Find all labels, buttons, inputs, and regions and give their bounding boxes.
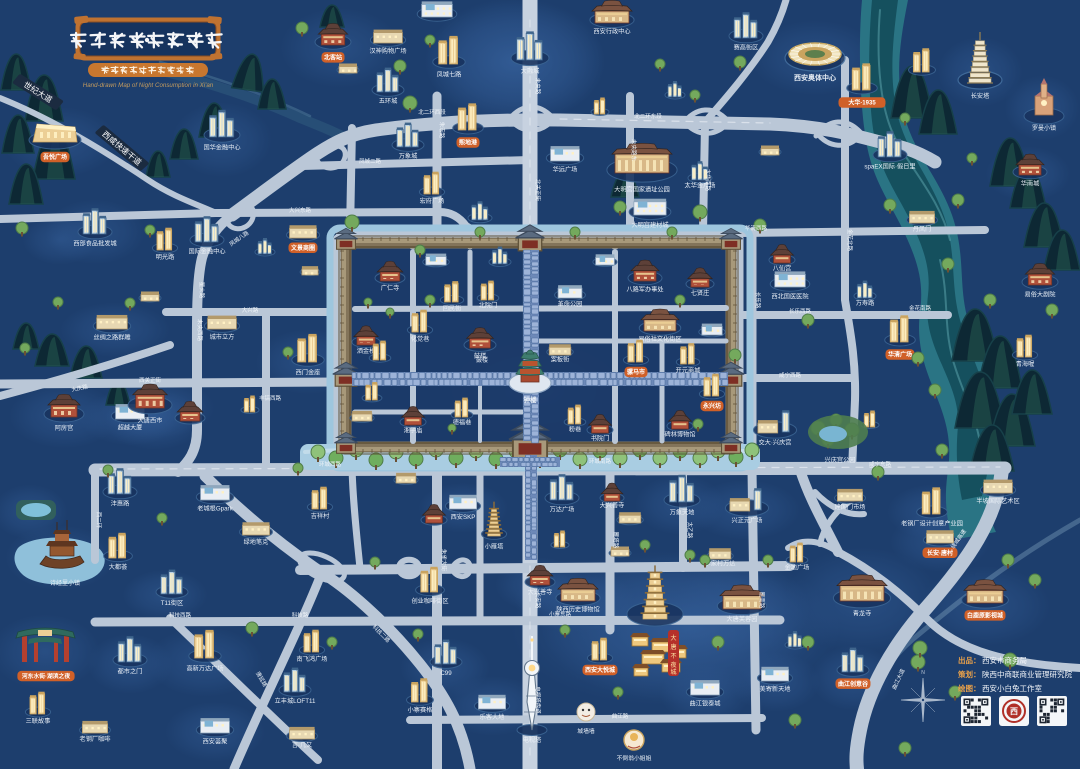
svg-text:都市之门: 都市之门 (118, 668, 143, 676)
svg-text:乐客大地: 乐客大地 (480, 713, 505, 721)
svg-text:老钢厂咖啡: 老钢厂咖啡 (80, 735, 111, 743)
svg-text:西: 西 (1010, 707, 1018, 716)
svg-text:科技路: 科技路 (292, 611, 309, 619)
svg-text:西部食品批发城: 西部食品批发城 (73, 240, 116, 248)
svg-text:spaEX国际·假日里: spaEX国际·假日里 (864, 163, 915, 171)
svg-text:文景商圈: 文景商圈 (290, 244, 315, 252)
svg-text:汉神购物广场: 汉神购物广场 (369, 47, 406, 55)
svg-text:凤城七路: 凤城七路 (437, 70, 463, 78)
svg-text:易俗大剧院: 易俗大剧院 (1025, 290, 1056, 298)
svg-text:北客站: 北客站 (324, 54, 342, 62)
svg-text:大兴善寺: 大兴善寺 (600, 502, 625, 510)
svg-text:科技西路: 科技西路 (169, 611, 192, 619)
svg-text:曲江银泰城: 曲江银泰城 (690, 700, 721, 708)
svg-text:城: 城 (670, 669, 676, 676)
svg-text:大融城: 大融城 (521, 67, 540, 75)
svg-text:七贤庄: 七贤庄 (691, 289, 710, 297)
svg-text:北关正街: 北关正街 (534, 179, 542, 202)
svg-text:建国门市场: 建国门市场 (835, 503, 866, 511)
svg-text:吉祥村: 吉祥村 (311, 512, 330, 520)
svg-text:赛高街区: 赛高街区 (734, 44, 759, 52)
svg-text:熙地港: 熙地港 (459, 139, 478, 147)
svg-text:未央西路: 未央西路 (196, 319, 204, 342)
svg-text:曲江路: 曲江路 (612, 712, 629, 720)
svg-text:曲江创意谷: 曲江创意谷 (838, 680, 869, 688)
svg-text:电视塔盘道: 电视塔盘道 (534, 686, 542, 714)
svg-text:大兴东路: 大兴东路 (289, 206, 312, 214)
svg-text:创业咖啡街区: 创业咖啡街区 (411, 597, 448, 605)
svg-text:回民街: 回民街 (443, 304, 462, 312)
svg-text:河东水街·湖滨之夜: 河东水街·湖滨之夜 (22, 672, 71, 680)
svg-text:万象天地: 万象天地 (670, 508, 695, 516)
svg-text:湘子庙: 湘子庙 (404, 426, 423, 434)
svg-text:老钢厂设计创意产业园: 老钢厂设计创意产业园 (901, 520, 963, 528)
svg-text:永兴坊: 永兴坊 (702, 402, 721, 410)
svg-text:未央路: 未央路 (534, 78, 542, 95)
svg-text:老城根Gpark: 老城根Gpark (197, 505, 233, 513)
svg-text:大都荟: 大都荟 (109, 563, 128, 571)
svg-text:小寨东路: 小寨东路 (549, 610, 572, 618)
svg-text:广仁寺: 广仁寺 (381, 284, 400, 292)
svg-text:华清西路: 华清西路 (745, 224, 768, 232)
svg-text:西二环: 西二环 (95, 512, 102, 529)
svg-text:C99: C99 (440, 670, 452, 677)
svg-text:罗曼小镇: 罗曼小镇 (1032, 124, 1056, 132)
svg-text:电视塔: 电视塔 (523, 736, 542, 744)
svg-text:大兴路: 大兴路 (242, 306, 259, 314)
svg-text:西关正街: 西关正街 (139, 376, 162, 384)
svg-text:唐: 唐 (670, 643, 676, 651)
svg-text:八仙宫: 八仙宫 (773, 264, 792, 272)
svg-text:吾悦广场: 吾悦广场 (43, 153, 67, 161)
svg-text:国华金融中心: 国华金融中心 (203, 143, 240, 151)
svg-text:钟楼: 钟楼 (524, 395, 538, 404)
svg-text:Hand-drawn Map of Night Consum: Hand-drawn Map of Night Consumption in X… (83, 82, 214, 89)
svg-text:国际金融中心: 国际金融中心 (188, 248, 225, 256)
svg-text:西安大悦城: 西安大悦城 (585, 666, 615, 674)
svg-text:兴庆宫公园: 兴庆宫公园 (825, 456, 856, 464)
svg-text:交大·兴庆宫: 交大·兴庆宫 (759, 438, 792, 446)
svg-text:华南城: 华南城 (1021, 180, 1040, 188)
svg-text:绿地笔克: 绿地笔克 (244, 538, 269, 546)
svg-text:T11街区: T11街区 (161, 599, 184, 607)
svg-text:不: 不 (670, 653, 676, 660)
svg-text:开元商城: 开元商城 (676, 366, 701, 374)
svg-text:北院门: 北院门 (479, 302, 498, 310)
svg-text:华远广场: 华远广场 (553, 166, 578, 174)
svg-text:丰镐西路: 丰镐西路 (259, 394, 282, 402)
svg-text:长乐路: 长乐路 (754, 292, 762, 309)
svg-text:西北国医医院: 西北国医医院 (771, 292, 808, 300)
svg-text:太华南路: 太华南路 (704, 169, 712, 192)
svg-text:立丰城LOFT11: 立丰城LOFT11 (275, 697, 316, 705)
svg-text:易俗社文化街区: 易俗社文化街区 (638, 335, 681, 343)
svg-text:大唐芙蓉园: 大唐芙蓉园 (727, 615, 758, 623)
svg-text:万象城: 万象城 (399, 152, 418, 160)
svg-text:金花北路: 金花北路 (846, 229, 854, 252)
svg-text:沣惠路: 沣惠路 (111, 500, 130, 508)
svg-text:五环城: 五环城 (379, 98, 398, 105)
svg-text:不倒翁小姐姐: 不倒翁小姐姐 (617, 754, 652, 762)
svg-text:兴正元广场: 兴正元广场 (732, 516, 763, 524)
svg-text:朱雀大街: 朱雀大街 (440, 549, 448, 572)
svg-text:三联故事: 三联故事 (26, 717, 51, 725)
svg-text:凤城二路: 凤城二路 (359, 157, 382, 165)
svg-text:大华·1935: 大华·1935 (848, 99, 876, 107)
svg-text:诗经里小镇: 诗经里小镇 (50, 579, 80, 587)
svg-text:化觉巷: 化觉巷 (411, 335, 430, 343)
svg-text:小雁塔: 小雁塔 (485, 542, 504, 550)
svg-text:碑林博物馆: 碑林博物馆 (665, 430, 696, 438)
svg-text:环城南路: 环城南路 (589, 457, 612, 465)
svg-text:西安市商务局: 西安市商务局 (982, 655, 1027, 665)
svg-text:美寄新天地: 美寄新天地 (760, 685, 791, 693)
svg-text:西安奥体中心: 西安奥体中心 (794, 73, 836, 82)
svg-text:大明宫国家遗址公园: 大明宫国家遗址公园 (614, 186, 670, 194)
svg-text:西安荟聚: 西安荟聚 (203, 738, 229, 746)
svg-text:N: N (921, 670, 925, 676)
svg-text:雁南路: 雁南路 (758, 592, 766, 609)
svg-text:咸宁西路: 咸宁西路 (779, 371, 802, 379)
svg-text:绘图：: 绘图： (958, 683, 981, 693)
svg-text:鼓楼: 鼓楼 (476, 356, 488, 364)
svg-text:城墙墙: 城墙墙 (577, 727, 595, 735)
svg-text:明光路: 明光路 (156, 253, 175, 261)
svg-text:革命公园: 革命公园 (558, 300, 583, 308)
svg-text:西安行政中心: 西安行政中心 (593, 28, 630, 36)
svg-text:陕西中商联商业管理研究院: 陕西中商联商业管理研究院 (982, 669, 1072, 679)
svg-text:宏府广场: 宏府广场 (420, 197, 445, 205)
svg-text:西门金座: 西门金座 (296, 368, 321, 376)
svg-text:北二环西段: 北二环西段 (418, 108, 446, 116)
svg-text:金地广场: 金地广场 (785, 564, 810, 572)
svg-text:青龙寺: 青龙寺 (853, 610, 872, 618)
svg-text:太乙路: 太乙路 (686, 522, 694, 539)
svg-text:大明宫建材城: 大明宫建材城 (631, 221, 668, 229)
svg-text:城市立方: 城市立方 (210, 333, 235, 341)
svg-text:粉巷: 粉巷 (569, 426, 582, 434)
svg-text:丹凤门: 丹凤门 (913, 225, 932, 233)
svg-text:咸宁东路: 咸宁东路 (869, 460, 892, 468)
svg-text:环城西路: 环城西路 (319, 460, 342, 468)
svg-text:朱宏路: 朱宏路 (438, 122, 446, 139)
svg-text:金花南路: 金花南路 (909, 304, 932, 312)
svg-text:长安塔: 长安塔 (971, 92, 990, 100)
svg-text:高新万达广场: 高新万达广场 (186, 664, 223, 672)
svg-text:万寿路: 万寿路 (856, 299, 875, 307)
svg-text:北二环东段: 北二环东段 (634, 112, 662, 120)
svg-text:长安路: 长安路 (534, 592, 542, 609)
svg-text:出品：: 出品： (958, 655, 981, 665)
svg-text:青海喔: 青海喔 (1016, 360, 1035, 368)
svg-text:小寨赛格: 小寨赛格 (408, 706, 434, 714)
svg-text:雁塔路: 雁塔路 (612, 532, 620, 549)
svg-text:华清广场: 华清广场 (888, 351, 912, 359)
svg-text:南飞鸿广场: 南飞鸿广场 (297, 655, 328, 663)
svg-text:半坡国际艺术区: 半坡国际艺术区 (976, 497, 1019, 505)
svg-text:大: 大 (670, 634, 676, 642)
svg-text:星火路: 星火路 (198, 282, 206, 299)
svg-text:书院门: 书院门 (591, 434, 610, 442)
svg-text:万达广场: 万达广场 (550, 506, 575, 514)
svg-text:大唐西市: 大唐西市 (138, 417, 163, 425)
svg-text:骡马市: 骡马市 (627, 368, 645, 376)
svg-text:洒金桥: 洒金桥 (357, 347, 376, 355)
svg-text:阿房宫: 阿房宫 (55, 424, 74, 432)
svg-text:策划：: 策划： (958, 669, 981, 679)
svg-text:言·几又: 言·几又 (292, 741, 313, 749)
svg-text:长乐西路: 长乐西路 (789, 307, 812, 315)
svg-text:八路军办事处: 八路军办事处 (626, 286, 663, 294)
svg-text:西安小白兔工作室: 西安小白兔工作室 (982, 683, 1042, 693)
svg-text:未央路东: 未央路东 (630, 139, 638, 162)
svg-text:白鹿原影视城: 白鹿原影视城 (967, 612, 1003, 620)
svg-text:长安·唐村: 长安·唐村 (927, 549, 953, 557)
svg-text:案板街: 案板街 (551, 356, 570, 364)
svg-text:西安SKP: 西安SKP (451, 513, 476, 521)
svg-text:超越大厦: 超越大厦 (118, 424, 143, 432)
svg-text:夜: 夜 (670, 661, 676, 669)
svg-text:丝绸之路群雕: 丝绸之路群雕 (93, 334, 130, 342)
